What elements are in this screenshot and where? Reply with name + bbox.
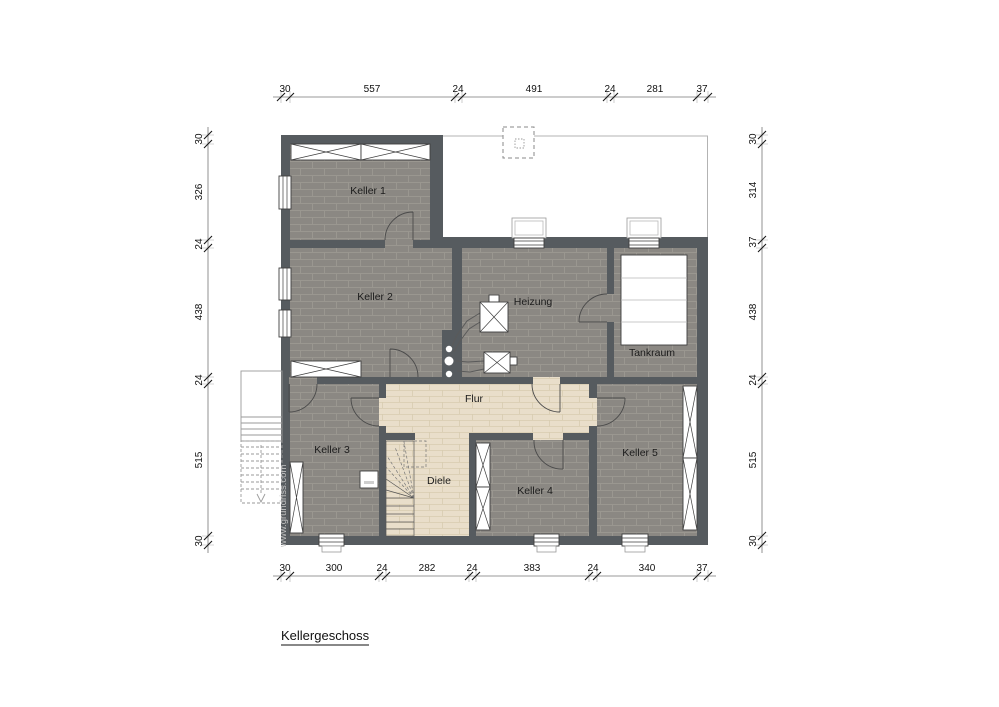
dim-right-4: 24 <box>748 374 759 386</box>
dim-top-0: 30 <box>279 84 291 95</box>
dim-left-3: 438 <box>194 303 205 320</box>
opening-flur-keller3 <box>379 398 386 426</box>
dim-bottom-3: 282 <box>419 563 436 574</box>
window-keller3-south <box>319 534 344 552</box>
opening-flur-keller5 <box>589 398 597 426</box>
label-keller5: Keller 5 <box>622 447 658 459</box>
window-keller5-south <box>622 534 648 552</box>
shelf-keller1-north <box>291 144 430 160</box>
dim-top-4: 24 <box>604 84 616 95</box>
shelf-keller4-west <box>476 443 490 530</box>
label-keller1: Keller 1 <box>350 185 386 197</box>
dim-bottom-0: 30 <box>279 563 291 574</box>
drawing-title: Kellergeschoss <box>281 628 370 645</box>
oil-tanks-icon <box>621 255 687 345</box>
floorplan-drawing: Keller 1 Keller 2 Heizung Tankraum Kelle… <box>0 0 999 707</box>
label-heizung: Heizung <box>514 296 553 308</box>
shelf-keller5-east <box>683 386 697 530</box>
stair-arrowhead-icon <box>257 494 265 502</box>
opening-keller2-keller3 <box>289 377 317 384</box>
shelf-keller3-west <box>290 462 303 533</box>
opening-heizung-flur <box>533 377 560 384</box>
dim-right-0: 30 <box>748 133 759 145</box>
keller3-fixture-icon <box>360 471 378 488</box>
dim-top-2: 24 <box>452 84 464 95</box>
room-diele-floor <box>386 440 469 536</box>
dim-left-6: 30 <box>194 535 205 547</box>
dim-right-1: 314 <box>748 181 759 198</box>
dim-top-1: 557 <box>364 84 381 95</box>
pipe-sleeve-icon <box>445 357 454 366</box>
dim-left-1: 326 <box>194 183 205 200</box>
open-area-outline <box>443 136 708 237</box>
window-keller2-west-2 <box>279 310 291 337</box>
opening-flur-diele <box>415 433 469 440</box>
dim-top-5: 281 <box>647 84 664 95</box>
dimension-chain-bottom: 30 300 24 282 24 383 24 340 37 <box>273 563 716 582</box>
opening-flur-keller4 <box>533 433 563 440</box>
dim-bottom-6: 24 <box>587 563 599 574</box>
dim-right-3: 438 <box>748 303 759 320</box>
window-heizung-north <box>512 218 546 248</box>
dimension-chain-top: 30 557 24 491 24 281 37 <box>273 84 716 103</box>
pipe-sleeve-icon <box>446 346 452 352</box>
label-keller3: Keller 3 <box>314 444 350 456</box>
window-keller2-west-1 <box>279 268 291 300</box>
window-tankraum-north <box>627 218 661 248</box>
shelf-keller2-south <box>291 361 361 377</box>
chimney-dashed-icon <box>503 127 534 158</box>
dim-right-6: 30 <box>748 535 759 547</box>
exterior-stair <box>241 371 282 503</box>
label-keller4: Keller 4 <box>517 485 553 497</box>
opening-heizung-tankraum <box>607 294 614 322</box>
label-diele: Diele <box>427 475 451 487</box>
dim-left-5: 515 <box>194 451 205 468</box>
dim-right-2: 37 <box>748 236 759 248</box>
dim-bottom-7: 340 <box>639 563 656 574</box>
dim-left-0: 30 <box>194 133 205 145</box>
dim-bottom-4: 24 <box>466 563 478 574</box>
window-keller1-west <box>279 176 291 209</box>
window-keller4-south <box>534 534 559 552</box>
dim-bottom-1: 300 <box>326 563 343 574</box>
page-title: Kellergeschoss <box>281 628 370 643</box>
dim-top-6: 37 <box>696 84 708 95</box>
room-keller2-floor <box>290 248 452 377</box>
watermark: www.grundriss.com <box>278 465 289 548</box>
dim-top-3: 491 <box>526 84 543 95</box>
dim-left-2: 24 <box>194 238 205 250</box>
label-tankraum: Tankraum <box>629 347 675 359</box>
dim-bottom-8: 37 <box>696 563 708 574</box>
room-keller5-floor <box>597 384 697 536</box>
dim-bottom-2: 24 <box>376 563 388 574</box>
pipe-sleeve-icon <box>446 371 452 377</box>
label-flur: Flur <box>465 393 484 405</box>
floorplan-page: Keller 1 Keller 2 Heizung Tankraum Kelle… <box>0 0 999 707</box>
dimension-chain-right: 30 314 37 438 24 515 30 <box>748 127 768 553</box>
label-keller2: Keller 2 <box>357 291 393 303</box>
dim-right-5: 515 <box>748 451 759 468</box>
dim-bottom-5: 383 <box>524 563 541 574</box>
opening-keller1-keller2 <box>385 240 413 248</box>
room-flur-floor <box>386 384 589 433</box>
dim-left-4: 24 <box>194 374 205 386</box>
dimension-chain-left: 30 326 24 438 24 515 30 <box>194 127 214 553</box>
chimney-block <box>442 330 462 384</box>
